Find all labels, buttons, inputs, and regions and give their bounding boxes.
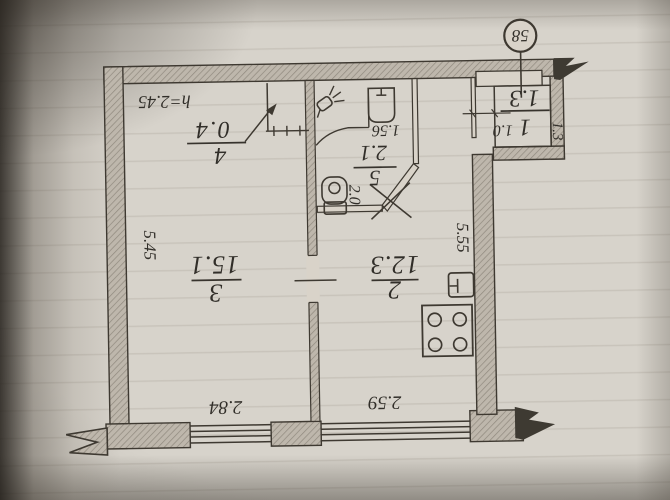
stove-icon: [422, 305, 473, 357]
room-4-area: 0.4: [194, 116, 230, 143]
shower-tray: [315, 88, 369, 145]
washbasin-icon: [368, 88, 395, 122]
closet-outline: [244, 82, 309, 141]
room-1-area: 1.3: [509, 84, 539, 111]
wall-break-icon: [554, 58, 589, 81]
room-3-number: 3: [209, 278, 224, 307]
wall-break-icon: [515, 406, 556, 440]
room-1-side-dim: 1.3: [549, 122, 565, 141]
room-2-number: 2: [388, 275, 402, 304]
door-opening: [306, 255, 320, 302]
closet-door-ticks: [266, 125, 309, 136]
room-1-width-dim: 1.0: [493, 121, 513, 138]
floor-plan-drawing: 58: [0, 0, 670, 500]
window-symbol-room3: [190, 425, 271, 443]
room-1-number: 1: [519, 114, 531, 140]
window-symbol-room2: [321, 421, 470, 441]
floor-plan-photo: 58: [0, 0, 670, 500]
labels: h=2.45 0.4 4 15.1 3 2.84 5.45 12.3 2 2.5…: [138, 84, 570, 419]
wall-break-icon: [66, 428, 107, 456]
toilet-side-dim: 2.0: [345, 185, 362, 205]
ceiling-height-label: h=2.45: [138, 91, 191, 112]
leader-arrow: [244, 101, 280, 142]
room-3-depth-dim: 5.45: [140, 230, 160, 260]
room-3-area: 15.1: [189, 250, 239, 280]
walls: [60, 58, 596, 456]
kitchen-sink-icon: [448, 273, 473, 297]
room-2-width-dim: 2.59: [367, 391, 401, 413]
room-5-area: 2.1: [359, 141, 387, 166]
room-4-number: 4: [214, 142, 226, 168]
room-3-width-dim: 2.84: [208, 396, 242, 418]
apartment-number: 58: [511, 26, 529, 45]
washbasin-dim: 1.56: [372, 121, 400, 138]
room-2-area: 12.3: [369, 250, 419, 280]
room-2-depth-dim: 5.55: [453, 223, 473, 253]
room-5-number: 5: [369, 166, 380, 191]
